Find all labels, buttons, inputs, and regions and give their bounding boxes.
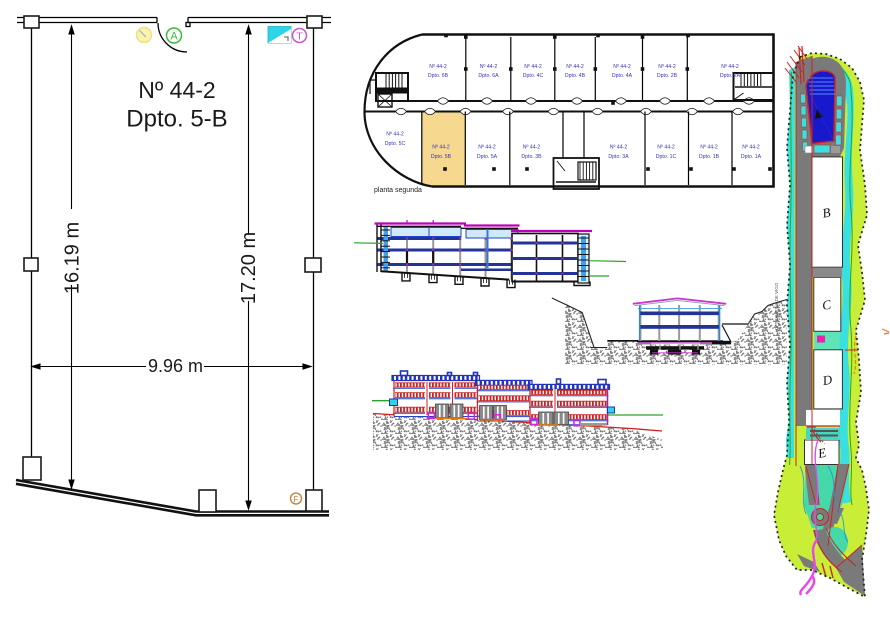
svg-text:Dpto. 1C: Dpto. 1C: [656, 154, 677, 160]
svg-text:F: F: [294, 495, 299, 504]
svg-text:Dpto. 2B: Dpto. 2B: [657, 73, 678, 79]
svg-text:C/ TRAVESIA DE VIGO: C/ TRAVESIA DE VIGO: [774, 282, 779, 330]
svg-text:Nº 44-2: Nº 44-2: [742, 145, 760, 151]
svg-text:Dpto. 5-B: Dpto. 5-B: [126, 106, 227, 133]
svg-text:Nº 44-2: Nº 44-2: [432, 145, 450, 151]
svg-text:Dpto. 1A: Dpto. 1A: [741, 154, 762, 160]
svg-text:Nº 44-2: Nº 44-2: [478, 145, 496, 151]
svg-text:Nº 44-2: Nº 44-2: [658, 64, 676, 70]
svg-text:Nº 44-2: Nº 44-2: [700, 145, 718, 151]
svg-text:T: T: [296, 31, 303, 43]
svg-text:Dpto. 3B: Dpto. 3B: [521, 154, 542, 160]
svg-text:Nº 44-2: Nº 44-2: [613, 64, 631, 70]
svg-text:Dpto. 2A: Dpto. 2A: [720, 73, 741, 79]
svg-text:Dpto. 5B: Dpto. 5B: [431, 154, 452, 160]
svg-text:planta segunda: planta segunda: [374, 187, 422, 194]
svg-text:17.20 m: 17.20 m: [238, 232, 260, 304]
svg-text:Dpto. 4A: Dpto. 4A: [612, 73, 633, 79]
svg-text:Nº 44-2: Nº 44-2: [138, 77, 215, 103]
svg-text:Dpto. 5C: Dpto. 5C: [385, 141, 406, 147]
svg-text:Nº 44-2: Nº 44-2: [657, 145, 675, 151]
svg-text:Nº 44-2: Nº 44-2: [524, 64, 542, 70]
svg-text:Nº 44-2: Nº 44-2: [721, 64, 739, 70]
svg-text:Nº 44-2: Nº 44-2: [386, 132, 404, 138]
svg-text:9.96 m: 9.96 m: [148, 356, 203, 376]
svg-text:Nº 44-2: Nº 44-2: [429, 64, 447, 70]
svg-text:Nº 44-2: Nº 44-2: [566, 64, 584, 70]
svg-text:Dpto. 6A: Dpto. 6A: [478, 73, 499, 79]
svg-text:Dpto. 1B: Dpto. 1B: [699, 154, 720, 160]
svg-text:Dpto. 6B: Dpto. 6B: [428, 73, 449, 79]
svg-text:Dpto. 4B: Dpto. 4B: [565, 73, 586, 79]
svg-text:16.19 m: 16.19 m: [62, 222, 84, 294]
svg-text:Nº 44-2: Nº 44-2: [523, 145, 541, 151]
svg-text:Dpto. 5A: Dpto. 5A: [477, 154, 498, 160]
svg-text:Dpto. 4C: Dpto. 4C: [523, 73, 544, 79]
svg-text:Nº 44-2: Nº 44-2: [610, 145, 628, 151]
svg-text:Nº 44-2: Nº 44-2: [480, 64, 498, 70]
svg-text:Dpto. 3A: Dpto. 3A: [608, 154, 629, 160]
svg-text:A: A: [170, 31, 178, 43]
